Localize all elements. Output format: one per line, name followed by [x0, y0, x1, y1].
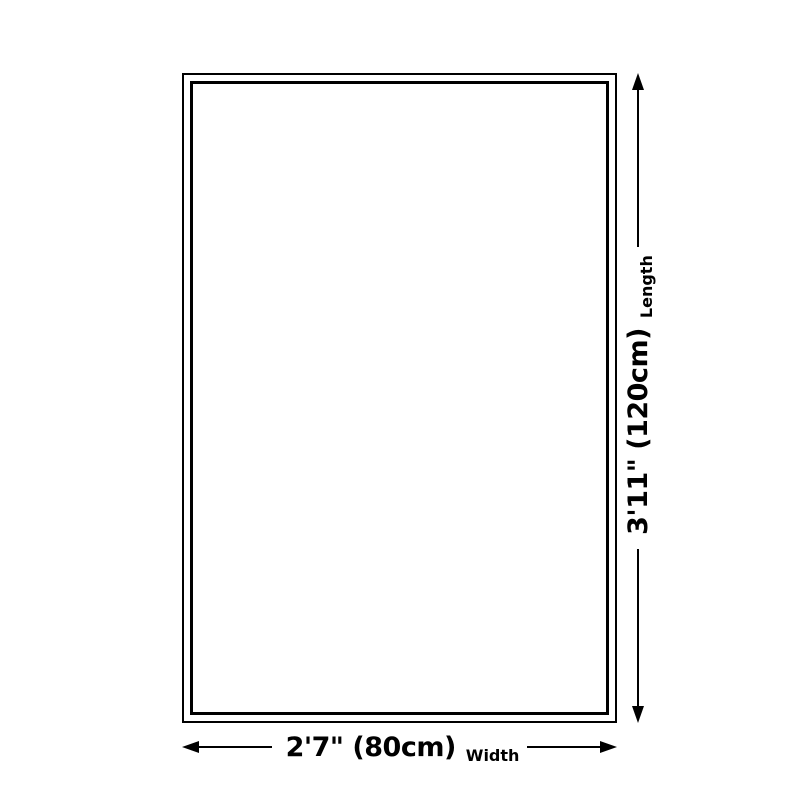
length-label: Length: [639, 255, 655, 318]
dimension-line: [199, 746, 272, 748]
arrow-up-icon: [632, 73, 644, 90]
dimension-line: [527, 746, 600, 748]
length-dimension: 3'11" (120cm) Length: [618, 73, 658, 723]
width-dimension: 2'7" (80cm) Width: [182, 727, 617, 767]
arrow-down-icon: [632, 706, 644, 723]
product-outline-inner-frame: [190, 81, 609, 715]
dimension-line: [637, 90, 639, 247]
arrow-left-icon: [182, 741, 199, 753]
length-value: 3'11" (120cm): [625, 328, 652, 535]
width-value: 2'7" (80cm): [286, 734, 456, 761]
dimension-line: [637, 549, 639, 706]
arrow-right-icon: [600, 741, 617, 753]
product-dimension-diagram: 3'11" (120cm) Length 2'7" (80cm) Width: [0, 0, 800, 800]
product-outline: [182, 73, 617, 723]
width-label: Width: [466, 748, 520, 764]
